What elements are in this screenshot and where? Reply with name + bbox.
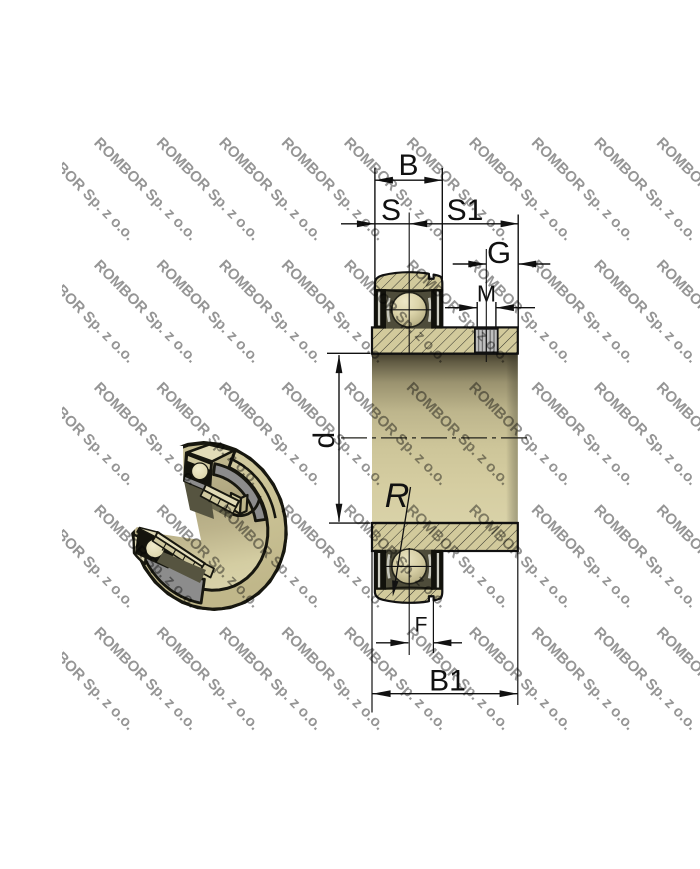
svg-text:ROMBOR Sp. z o.o.: ROMBOR Sp. z o.o. [465, 134, 575, 244]
svg-text:ROMBOR Sp. z o.o.: ROMBOR Sp. z o.o. [528, 379, 638, 489]
svg-text:ROMBOR Sp. z o.o.: ROMBOR Sp. z o.o. [278, 134, 388, 244]
svg-text:ROMBOR Sp. z o.o.: ROMBOR Sp. z o.o. [590, 502, 700, 612]
svg-text:ROMBOR Sp. z o.o.: ROMBOR Sp. z o.o. [528, 624, 638, 734]
svg-text:ROMBOR Sp. z o.o.: ROMBOR Sp. z o.o. [28, 257, 138, 367]
svg-text:ROMBOR Sp. z o.o.: ROMBOR Sp. z o.o. [215, 134, 325, 244]
svg-text:ROMBOR Sp. z o.o.: ROMBOR Sp. z o.o. [590, 624, 700, 734]
svg-text:ROMBOR Sp. z o.o.: ROMBOR Sp. z o.o. [28, 624, 138, 734]
svg-text:ROMBOR Sp. z o.o.: ROMBOR Sp. z o.o. [590, 257, 700, 367]
svg-text:ROMBOR Sp. z o.o.: ROMBOR Sp. z o.o. [28, 134, 138, 244]
svg-text:ROMBOR Sp. z o.o.: ROMBOR Sp. z o.o. [590, 379, 700, 489]
svg-text:ROMBOR Sp. z o.o.: ROMBOR Sp. z o.o. [528, 134, 638, 244]
svg-text:ROMBOR Sp. z o.o.: ROMBOR Sp. z o.o. [590, 134, 700, 244]
svg-text:ROMBOR Sp. z o.o.: ROMBOR Sp. z o.o. [215, 257, 325, 367]
svg-text:ROMBOR Sp. z o.o.: ROMBOR Sp. z o.o. [90, 257, 200, 367]
svg-text:ROMBOR Sp. z o.o.: ROMBOR Sp. z o.o. [278, 257, 388, 367]
svg-text:ROMBOR Sp. z o.o.: ROMBOR Sp. z o.o. [528, 502, 638, 612]
svg-text:ROMBOR Sp. z o.o.: ROMBOR Sp. z o.o. [403, 624, 513, 734]
svg-text:ROMBOR Sp. z o.o.: ROMBOR Sp. z o.o. [28, 379, 138, 489]
svg-text:ROMBOR Sp. z o.o.: ROMBOR Sp. z o.o. [403, 134, 513, 244]
svg-text:ROMBOR Sp. z o.o.: ROMBOR Sp. z o.o. [153, 134, 263, 244]
svg-text:ROMBOR Sp. z o.o.: ROMBOR Sp. z o.o. [278, 502, 388, 612]
svg-text:ROMBOR Sp. z o.o.: ROMBOR Sp. z o.o. [278, 624, 388, 734]
svg-text:ROMBOR Sp. z o.o.: ROMBOR Sp. z o.o. [90, 134, 200, 244]
svg-text:ROMBOR Sp. z o.o.: ROMBOR Sp. z o.o. [465, 502, 575, 612]
svg-text:ROMBOR Sp. z o.o.: ROMBOR Sp. z o.o. [465, 624, 575, 734]
svg-text:ROMBOR Sp. z o.o.: ROMBOR Sp. z o.o. [153, 624, 263, 734]
svg-text:ROMBOR Sp. z o.o.: ROMBOR Sp. z o.o. [153, 257, 263, 367]
svg-text:ROMBOR Sp. z o.o.: ROMBOR Sp. z o.o. [278, 379, 388, 489]
svg-text:ROMBOR Sp. z o.o.: ROMBOR Sp. z o.o. [90, 624, 200, 734]
svg-text:ROMBOR Sp. z o.o.: ROMBOR Sp. z o.o. [528, 257, 638, 367]
svg-text:ROMBOR Sp. z o.o.: ROMBOR Sp. z o.o. [340, 134, 450, 244]
svg-text:R: R [385, 477, 410, 515]
svg-text:ROMBOR Sp. z o.o.: ROMBOR Sp. z o.o. [215, 624, 325, 734]
